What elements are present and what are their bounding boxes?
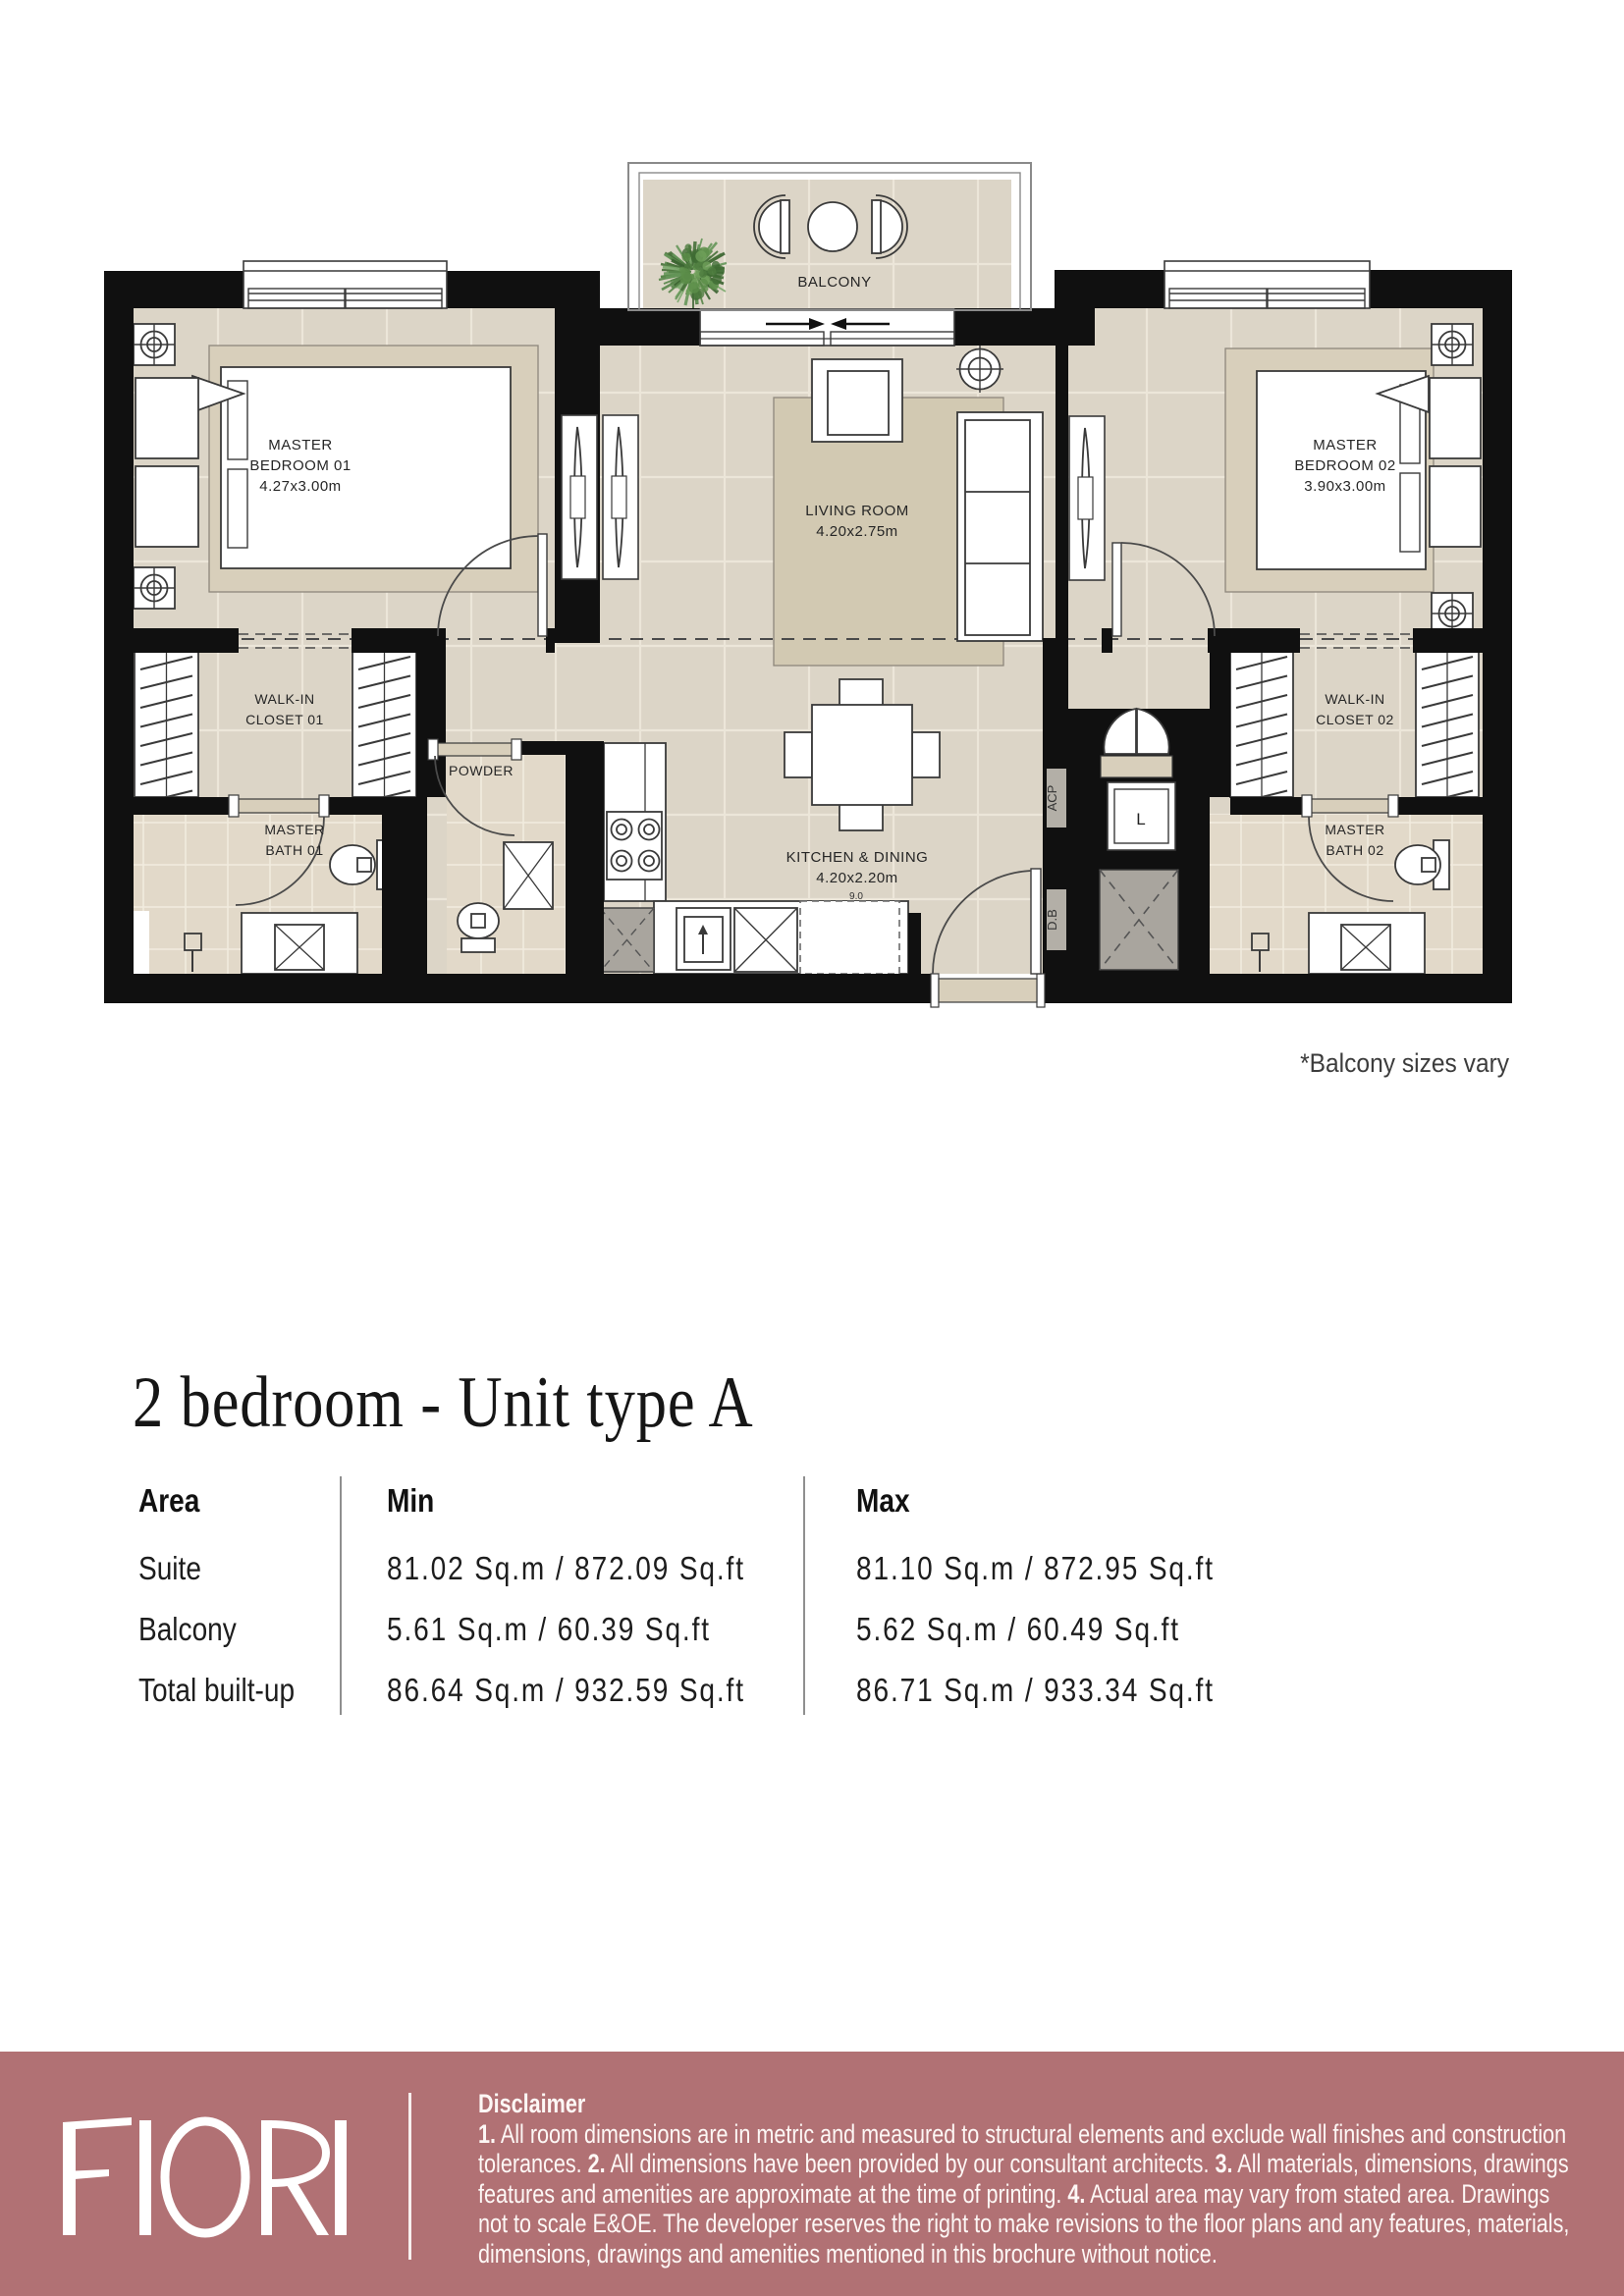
svg-text:MASTER: MASTER [1313, 437, 1378, 454]
svg-text:BATH 02: BATH 02 [1326, 842, 1383, 858]
svg-text:MASTER: MASTER [1325, 822, 1384, 837]
svg-text:KITCHEN & DINING: KITCHEN & DINING [786, 849, 929, 866]
svg-text:BALCONY: BALCONY [797, 274, 871, 291]
svg-text:4.20x2.75m: 4.20x2.75m [816, 523, 897, 540]
svg-text:9.0: 9.0 [849, 891, 863, 902]
svg-text:CLOSET 02: CLOSET 02 [1316, 712, 1394, 727]
svg-text:WALK-IN: WALK-IN [1325, 691, 1384, 707]
svg-text:D.B: D.B [1045, 909, 1059, 931]
svg-text:LIVING ROOM: LIVING ROOM [805, 503, 909, 519]
svg-text:4.20x2.20m: 4.20x2.20m [816, 870, 897, 886]
svg-text:ACP: ACP [1045, 785, 1059, 812]
svg-text:L: L [1136, 810, 1145, 828]
svg-text:3.90x3.00m: 3.90x3.00m [1304, 478, 1385, 495]
svg-text:POWDER: POWDER [449, 763, 514, 778]
svg-text:BEDROOM 02: BEDROOM 02 [1294, 457, 1395, 474]
